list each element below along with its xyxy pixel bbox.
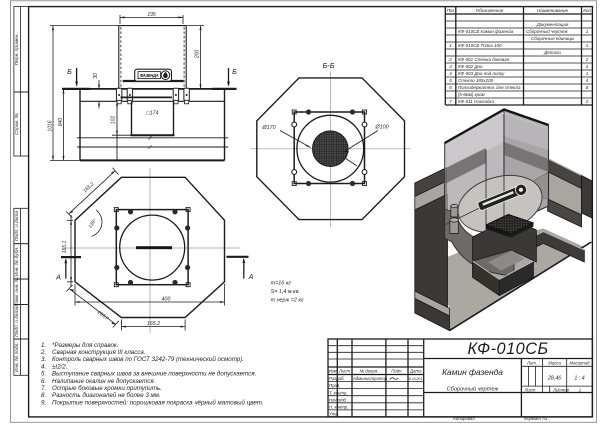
svg-text:2: 2 [448,57,452,62]
svg-text:Пров.: Пров. [329,383,340,388]
svg-text:Инв. № подл.: Инв. № подл. [14,342,20,372]
svg-text:195: 195 [147,12,156,18]
svg-text:400: 400 [162,296,171,302]
svg-text:165,2: 165,2 [147,321,160,327]
svg-text:Ø100: Ø100 [374,125,388,131]
svg-text:3.: 3. [41,356,46,363]
svg-text:5.: 5. [41,371,46,378]
svg-text:Масштаб: Масштаб [569,360,590,365]
svg-text:Масса: Масса [548,360,561,365]
svg-text:Н. контр.: Н. контр. [329,405,348,410]
svg-text:Утв.: Утв. [329,412,339,417]
svg-text:Изм: Изм [329,369,337,374]
svg-text:Лист: Лист [523,388,535,393]
svg-text:Формат А3: Формат А3 [524,416,548,421]
svg-text:28,46: 28,46 [547,376,561,382]
svg-text:9.: 9. [41,399,46,406]
svg-text:4.: 4. [41,363,46,370]
svg-text:КФ-002 Дно: КФ-002 Дно [458,64,483,69]
svg-text:Выступание сварных швов за вне: Выступание сварных швов за внешние повер… [52,371,256,378]
svg-text:Дата: Дата [409,369,422,374]
svg-text:Подп. и дата: Подп. и дата [14,306,20,336]
svg-text:Контроль сварных швов по ГОСТ: Контроль сварных швов по ГОСТ 3242-79 (т… [52,356,244,363]
svg-text:Б-Б: Б-Б [322,61,334,70]
svg-text:1 : 4: 1 : 4 [574,376,584,382]
svg-text:7.: 7. [41,385,46,392]
svg-text:*Размеры для справок.: *Размеры для справок. [52,342,119,349]
svg-text:Ø170: Ø170 [261,125,275,131]
svg-text:КФ-003 Дно под полку: КФ-003 Дно под полку [458,71,505,76]
svg-text:Листов: Листов [552,388,569,393]
svg-text:Инв. № дубл.: Инв. № дубл. [14,247,20,277]
svg-text:КФ-011 Накладка: КФ-011 Накладка [458,99,495,104]
svg-text:Полкодержатель для стекла: Полкодержатель для стекла [458,85,521,90]
svg-text:1016: 1016 [48,120,54,131]
svg-text:Лист: Лист [338,369,350,374]
svg-text:Т. контр.: Т. контр. [329,390,348,395]
svg-text:[5-6мм] хром: [5-6мм] хром [457,92,485,97]
svg-text:КФ-010СБ: КФ-010СБ [467,340,548,358]
svg-text:m=16 кг: m=16 кг [271,281,292,287]
svg-text:102: 102 [111,116,117,125]
svg-text:Взам. инв. №: Взам. инв. № [14,277,20,307]
svg-text:Поз: Поз [447,8,455,13]
svg-text:Перв. примен.: Перв. примен. [14,33,20,65]
svg-text:840: 840 [58,118,64,127]
svg-text:8.10.2013: 8.10.2013 [409,377,424,381]
svg-text:Сборочный чертеж: Сборочный чертеж [526,28,568,34]
svg-text:m нерж =2 кг: m нерж =2 кг [271,297,304,303]
svg-text:Справ. №: Справ. № [14,113,20,135]
svg-text:Администратор: Администратор [352,376,388,381]
svg-text:№ докум.: № докум. [360,369,379,374]
svg-text:Камин фазенда: Камин фазенда [442,367,503,377]
svg-text:Б: Б [67,67,72,76]
svg-text:200: 200 [195,50,201,60]
svg-text:Б: Б [232,67,237,76]
svg-text:Детали: Детали [543,50,561,55]
svg-text:А: А [248,272,254,281]
svg-text:Кол: Кол [583,8,591,13]
svg-text:Обозначение: Обозначение [476,8,504,13]
svg-text:2: 2 [585,57,589,62]
svg-text:±t2/2.: ±t2/2. [52,363,67,370]
svg-text:КФ-010СБ Топка 100: КФ-010СБ Топка 100 [458,43,502,48]
svg-text:1.: 1. [41,342,46,349]
svg-text:6.: 6. [41,378,46,385]
svg-text:Налипание окалин не допускаетс: Налипание окалин не допускается. [52,378,155,385]
svg-text:2: 2 [585,99,589,104]
svg-text:165,1: 165,1 [62,241,68,254]
svg-text:Сборочный чертеж: Сборочный чертеж [447,386,500,393]
svg-text:Подп.: Подп. [391,369,402,374]
svg-text:Стекло 185х200: Стекло 185х200 [458,78,494,83]
svg-text:Покрытие поверхностей: порошко: Покрытие поверхностей: порошковая покрас… [52,399,264,406]
svg-text:Документация: Документация [536,22,569,27]
svg-text:Нач.отд: Нач.отд [329,397,347,402]
svg-text:Сборочные единицы: Сборочные единицы [531,36,575,41]
svg-text:□174: □174 [147,111,159,117]
svg-text:ФАЗЕНДА: ФАЗЕНДА [140,73,159,78]
svg-text:S= 1,4 м.кв.: S= 1,4 м.кв. [271,289,300,295]
svg-text:Копировал: Копировал [453,416,475,421]
svg-text:30: 30 [93,73,99,79]
svg-text:Разраб.: Разраб. [329,376,345,381]
svg-text:Сварная конструкция III класса: Сварная конструкция III класса. [52,349,146,356]
svg-text:Разность диагоналей не более 3: Разность диагоналей не более 3 мм. [52,392,161,399]
svg-text:2.: 2. [40,349,46,356]
svg-text:Подп. и дата: Подп. и дата [14,211,20,241]
svg-text:Наименование: Наименование [537,8,569,13]
svg-text:А: А [55,273,61,282]
svg-text:КФ-001 Стенка боковая: КФ-001 Стенка боковая [458,57,510,62]
svg-text:8.: 8. [41,392,46,399]
svg-text:КФ-010СБ Камин фазенда: КФ-010СБ Камин фазенда [458,29,514,34]
svg-text:Острые боковые кромки притупит: Острые боковые кромки притупить. [52,385,162,392]
svg-text:Лит.: Лит. [526,360,537,365]
